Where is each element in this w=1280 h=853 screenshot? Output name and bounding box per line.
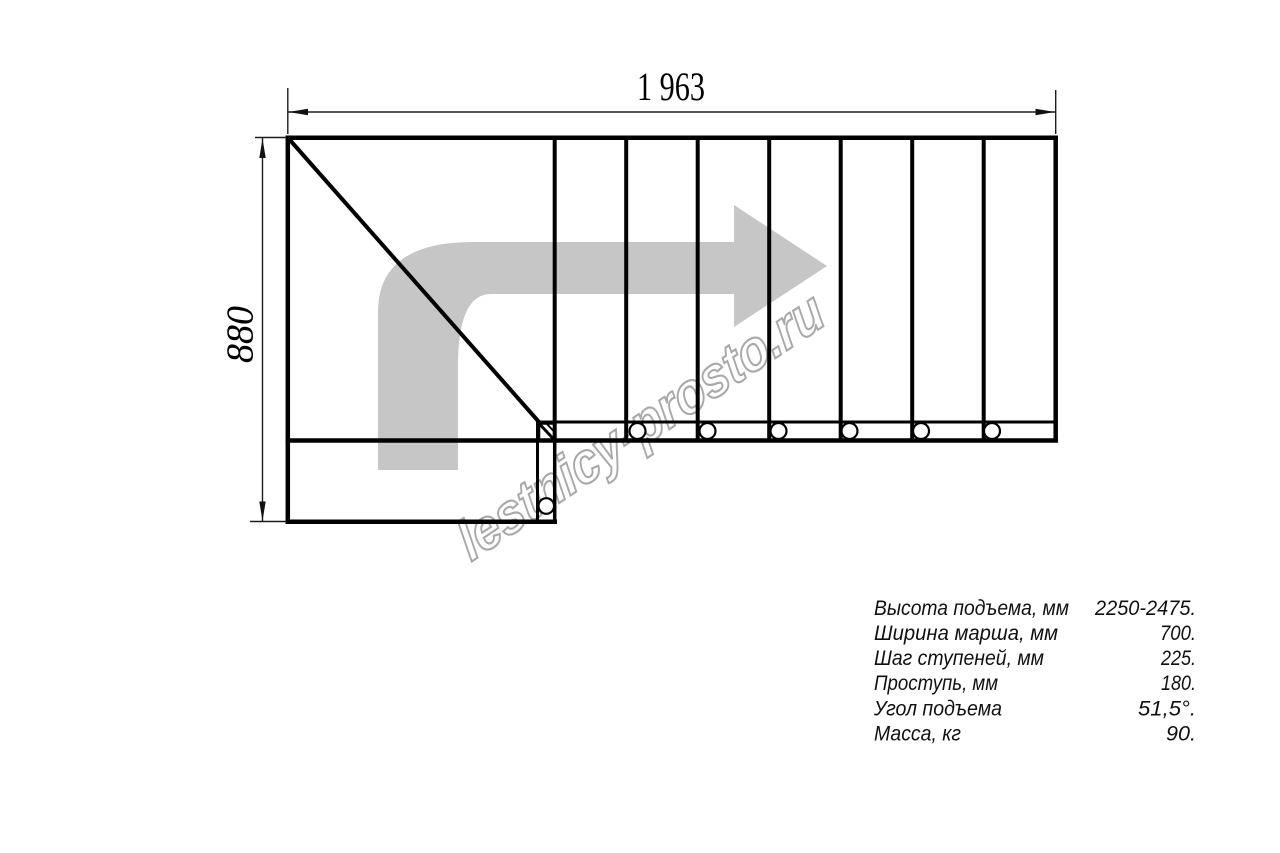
svg-text:51,5°.: 51,5°. — [1138, 697, 1196, 721]
svg-text:1 963: 1 963 — [637, 64, 705, 109]
svg-text:180.: 180. — [1161, 671, 1196, 695]
svg-text:2250-2475.: 2250-2475. — [1094, 596, 1196, 620]
svg-text:Шаг ступеней, мм: Шаг ступеней, мм — [874, 646, 1044, 670]
svg-text:Проступь, мм: Проступь, мм — [874, 671, 998, 695]
svg-text:Угол подъема: Угол подъема — [873, 697, 1002, 721]
svg-text:880: 880 — [220, 306, 262, 363]
svg-text:90.: 90. — [1166, 722, 1196, 746]
svg-text:700.: 700. — [1160, 621, 1196, 645]
svg-text:Ширина марша, мм: Ширина марша, мм — [874, 621, 1058, 645]
svg-text:225.: 225. — [1160, 646, 1196, 670]
svg-text:Масса, кг: Масса, кг — [874, 722, 961, 746]
svg-text:Высота подъема, мм: Высота подъема, мм — [874, 596, 1069, 620]
